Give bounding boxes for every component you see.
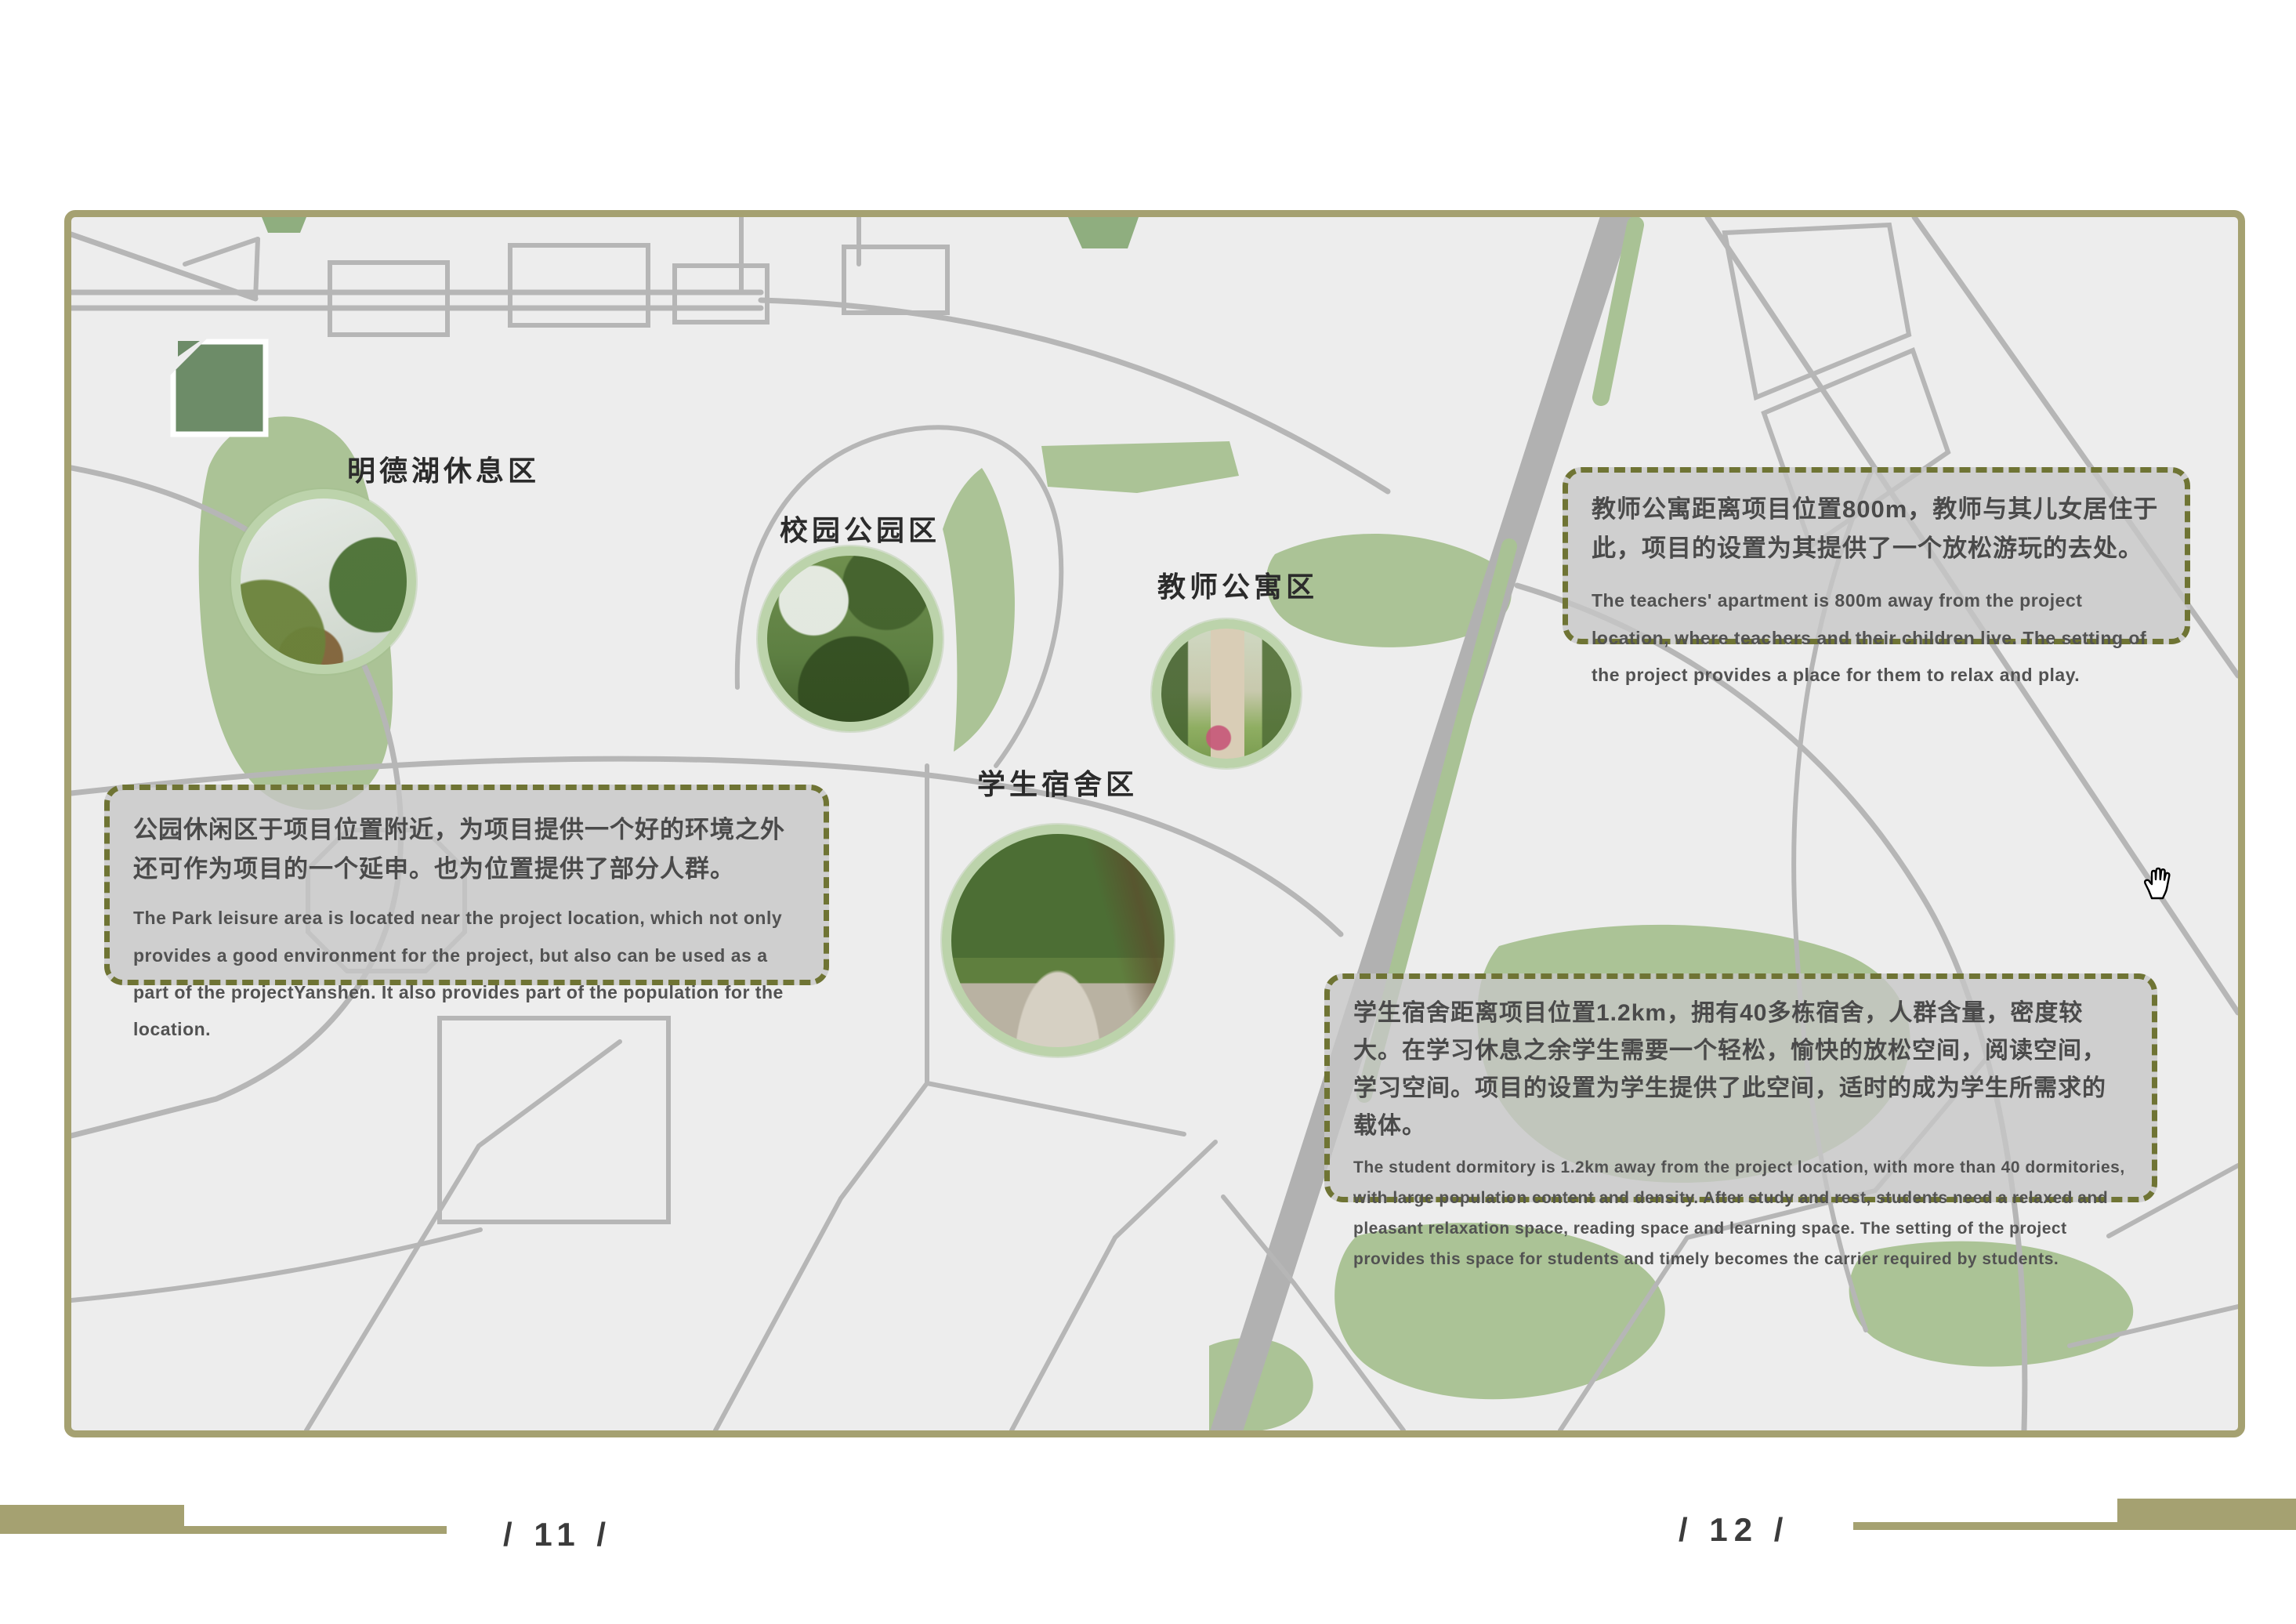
photo-lake[interactable] (231, 489, 416, 674)
grab-hand-cursor-icon (2141, 862, 2177, 901)
callout-students-english-text: The student dormitory is 1.2km away from… (1353, 1153, 2128, 1274)
page-number-left: / 11 / (503, 1516, 612, 1553)
callout-park-chinese-text: 公园休闲区于项目位置附近，为项目提供一个好的环境之外还可作为项目的一个延申。也为… (133, 810, 800, 889)
label-student-dormitory-area: 学生宿舍区 (977, 762, 1138, 803)
callout-teachers-chinese-text: 教师公寓距离项目位置800m，教师与其儿女居住于此，项目的设置为其提供了一个放松… (1592, 490, 2161, 568)
label-lake-rest-area: 明德湖休息区 (347, 448, 540, 489)
callout-teachers-apartment: 教师公寓距离项目位置800m，教师与其儿女居住于此，项目的设置为其提供了一个放松… (1563, 467, 2190, 644)
building-block (168, 336, 266, 434)
callout-student-dormitory: 学生宿舍距离项目位置1.2km，拥有40多栋宿舍，人群含量，密度较大。在学习休息… (1324, 973, 2157, 1202)
label-teachers-apartment-area: 教师公寓区 (1157, 564, 1318, 605)
callout-park-leisure: 公园休闲区于项目位置附近，为项目提供一个好的环境之外还可作为项目的一个延申。也为… (104, 785, 829, 985)
callout-park-english-text: The Park leisure area is located near th… (133, 900, 800, 1048)
portfolio-spread: 明德湖休息区 校园公园区 教师公寓区 学生宿舍区 公园休闲区于项目位置附近，为项… (0, 0, 2296, 1624)
callout-teachers-english-text: The teachers' apartment is 800m away fro… (1592, 582, 2161, 693)
footer-right-block (2117, 1499, 2296, 1530)
footer-left-bar (0, 1526, 447, 1534)
callout-students-chinese-text: 学生宿舍距离项目位置1.2km，拥有40多栋宿舍，人群含量，密度较大。在学习休息… (1353, 995, 2128, 1145)
page-number-right: / 12 / (1679, 1511, 1789, 1549)
photo-student-dormitory[interactable] (942, 825, 1174, 1057)
photo-campus-park[interactable] (758, 546, 943, 731)
photo-teachers-apartment[interactable] (1152, 619, 1301, 768)
footer-left-block (0, 1505, 184, 1528)
label-campus-park-area: 校园公园区 (780, 508, 940, 549)
